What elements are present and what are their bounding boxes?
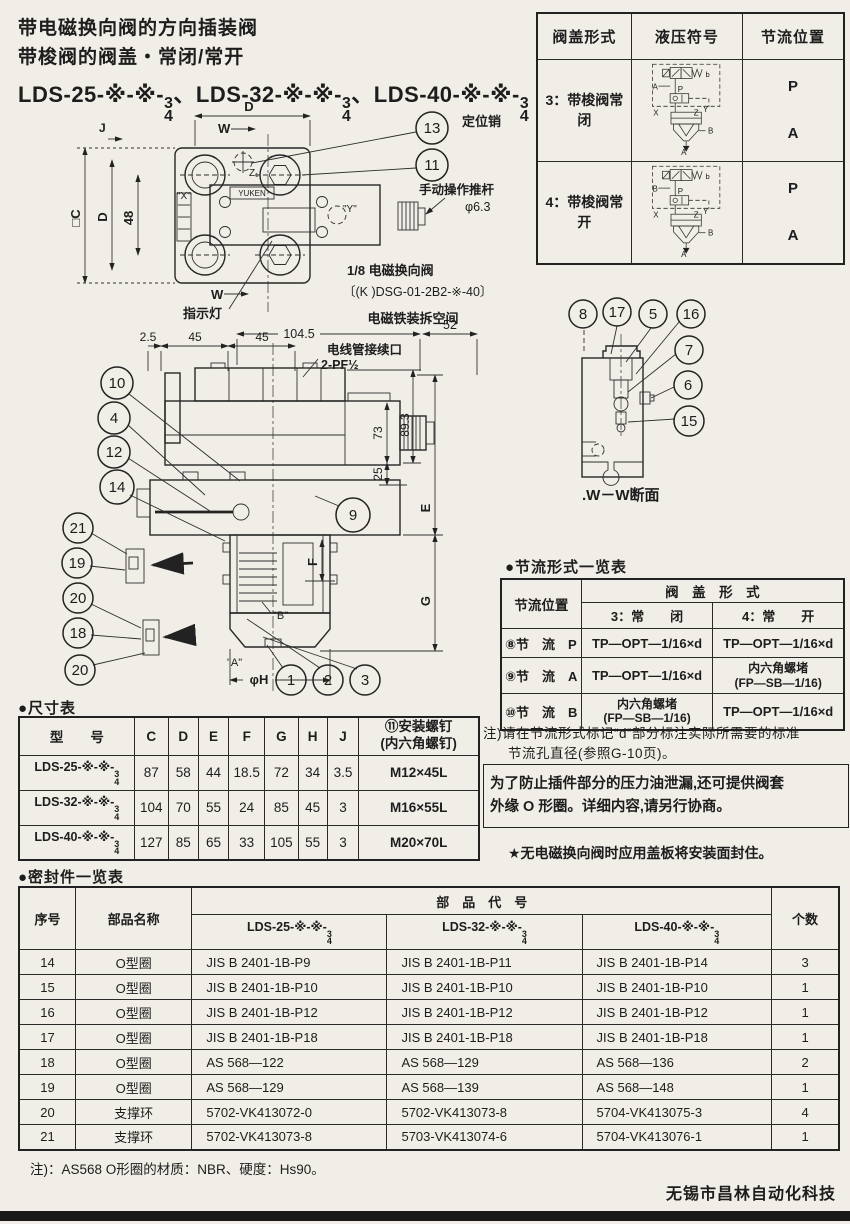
seal-row-15: 15 O型圈 JIS B 2401-1B-P10 JIS B 2401-1B-P… [19,975,839,1000]
val-j: 3 [327,790,359,825]
val-j: 3 [327,825,359,860]
dimension-row-lds25: LDS-25-※-※-34 87 58 44 18.5 72 34 3.5 M1… [19,755,479,790]
seal-name: O型圈 [75,975,191,1000]
port-b-label: "B" [273,610,288,622]
val-screw: M16×55L [359,790,479,825]
val-screw: M12×45L [359,755,479,790]
throttle-header-row-1: 节流位置 阀 盖 形 式 [501,579,844,603]
balloon-4: 4 [98,402,130,434]
seal-code-3: AS 568—148 [582,1075,772,1100]
seal-code-1: 5702-VK413073-8 [192,1125,387,1150]
throttle-pos-a: A [788,227,799,244]
balloon-3: 3 [350,665,380,695]
seal-code-1: AS 568—129 [192,1075,387,1100]
manual-rod-label: 手动操作推杆 [419,182,495,197]
balloon-11: 11 [416,149,448,181]
conduit-port-label: 电线管接续口 [327,342,402,357]
symbol-port-a-bottom: A [681,148,687,157]
dim-j: J [99,121,106,135]
symbol-port-x: X [653,210,659,219]
balloon-12: 12 [98,436,130,468]
catalog-page: 带电磁换向阀的方向插装阀 带梭阀的阀盖・常闭/常开 LDS-25-※-※-34、… [0,0,850,1224]
locating-pin-label: 定位销 [461,114,501,129]
solenoid-valve-label: 1/8 电磁换向阀 [347,263,434,278]
throttle-table-title: ●节流形式一览表 [505,556,843,580]
seal-parts-table: 序号 部品名称 部 品 代 号 个数 LDS-25-※-※-34 LDS-32-… [18,886,840,1151]
header-cover-form: 阀盖形式 [537,13,631,59]
svg-text:11: 11 [424,157,440,174]
header-normally-open: 4：常 开 [713,603,844,629]
val-d: 70 [168,790,198,825]
throttle-pos-a: A [788,125,799,142]
seal-material-note: 注)：AS568 O形圈的材质：NBR、硬度：Hs90。 [30,1158,325,1178]
seal-name: 支撑环 [75,1125,191,1150]
dim-g: G [418,596,433,606]
throttle-note-line-1: 注)请在节流形式标记“d”部分标注实际所需要的标准 [483,722,845,742]
port-z1-label: Z₁ [249,168,259,179]
svg-text:14: 14 [109,479,126,496]
svg-text:3: 3 [361,672,369,689]
seal-name: O型圈 [75,1000,191,1025]
hydraulic-symbol-closed-cell: b A P X Z Y B A [631,59,742,161]
seal-qty: 1 [772,1125,839,1150]
svg-text:21: 21 [70,520,87,537]
header-h: H [298,717,327,755]
cover-form-table: 阀盖形式 液压符号 节流位置 3：带梭阀常闭 b A P [536,12,845,265]
closed-value: TP—OPT—1/16×d [581,629,713,658]
symbol-port-z: Z [694,210,699,219]
balloon-18: 18 [63,618,93,648]
seal-name: O型圈 [75,950,191,975]
cover-form-row-closed: 3：带梭阀常闭 b A P X Z [537,59,844,161]
svg-text:10: 10 [109,375,126,392]
header-f: F [229,717,265,755]
seal-code-1: JIS B 2401-1B-P9 [192,950,387,975]
header-model: 型 号 [19,717,134,755]
hydraulic-symbol-closed: b A P X Z Y B A [641,60,733,156]
header-d: D [168,717,198,755]
header-c: C [134,717,168,755]
svg-text:16: 16 [683,306,700,323]
seal-code-1: 5702-VK413072-0 [192,1100,387,1125]
balloon-20b: 20 [65,655,95,685]
seal-code-3: JIS B 2401-1B-P12 [582,1000,772,1025]
seal-code-2: JIS B 2401-1B-P18 [387,1025,582,1050]
val-e: 55 [198,790,229,825]
section-view-drawing: 电磁铁装拆空间 104.5 52 2.5 45 45 电线管接续口 2-PF½ [15,313,535,715]
seal-row-17: 17 O型圈 JIS B 2401-1B-P18 JIS B 2401-1B-P… [19,1025,839,1050]
seal-code-3: 5704-VK413075-3 [582,1100,772,1125]
symbol-port-left: B [652,184,657,193]
seal-code-3: JIS B 2401-1B-P18 [582,1025,772,1050]
solenoid-valve-model: 〔(K )DSG-01-2B2-※-40〕 [343,285,492,299]
throttle-pos-cell: ⑧节 流 P [501,629,581,658]
header-e: E [198,717,229,755]
seal-row-20: 20 支撑环 5702-VK413072-0 5702-VK413073-8 5… [19,1100,839,1125]
dim-89-3: 89.3 [398,413,412,437]
svg-text:13: 13 [424,120,441,137]
seal-code-3: AS 568—136 [582,1050,772,1075]
svg-text:17: 17 [609,304,626,321]
throttle-form-table: 节流位置 阀 盖 形 式 3：常 闭 4：常 开 ⑧节 流 P TP—OPT—1… [500,578,845,731]
cover-form-row-open: 4：带梭阀常开 b B P X Z [537,161,844,264]
val-j: 3.5 [327,755,359,790]
star-note: ★无电磁换向阀时应用盖板将安装面封住。 [508,843,773,863]
svg-text:20: 20 [70,590,87,607]
seal-qty: 4 [772,1100,839,1125]
seal-no: 15 [19,975,75,1000]
seal-row-14: 14 O型圈 JIS B 2401-1B-P9 JIS B 2401-1B-P1… [19,950,839,975]
throttle-row-a: ⑨节 流 A TP—OPT—1/16×d 内六角螺堵(FP—SB—1/16) [501,658,844,694]
cover-form-3-label: 3：带梭阀常闭 [537,59,631,161]
symbol-port-p: P [678,85,683,94]
header-qty: 个数 [772,887,839,950]
balloon-13: 13 [416,112,448,144]
balloon-6: 6 [674,371,702,399]
model-cell: LDS-40-※-※-34 [19,825,134,860]
model-cell: LDS-25-※-※-34 [19,755,134,790]
throttle-pos-cell: ⑨节 流 A [501,658,581,694]
symbol-port-bb: B [708,126,713,135]
svg-text:4: 4 [110,410,118,427]
seal-code-1: JIS B 2401-1B-P12 [192,1000,387,1025]
footer-company: 无锡市昌林自动化科技 [666,1180,836,1204]
svg-text:9: 9 [349,507,357,524]
throttle-pos-p: P [788,78,798,95]
balloon-20a: 20 [63,583,93,613]
balloon-14: 14 [100,470,134,504]
dim-45-a: 45 [188,330,202,344]
throttle-pos-p: P [788,180,798,197]
seal-name: 支撑环 [75,1100,191,1125]
seal-table-title: ●密封件一览表 [18,866,124,887]
balloon-8: 8 [569,300,597,328]
seal-qty: 3 [772,950,839,975]
val-c: 87 [134,755,168,790]
header-throttle-position: 节流位置 [501,579,581,629]
brand-label: YUKEN [238,189,266,198]
seal-header-row-1: 序号 部品名称 部 品 代 号 个数 [19,887,839,915]
seal-code-3: JIS B 2401-1B-P14 [582,950,772,975]
title-line-1: 带电磁换向阀的方向插装阀 [18,14,529,43]
seal-no: 17 [19,1025,75,1050]
seal-code-2: JIS B 2401-1B-P11 [387,950,582,975]
val-d: 85 [168,825,198,860]
seal-name: O型圈 [75,1075,191,1100]
balloon-17: 17 [603,298,631,326]
cover-form-4-label: 4：带梭阀常开 [537,161,631,264]
cover-form-header-row: 阀盖形式 液压符号 节流位置 [537,13,844,59]
svg-text:1: 1 [287,672,295,689]
val-e: 44 [198,755,229,790]
dim-25: 25 [371,467,385,481]
balloon-16: 16 [677,300,705,328]
dim-2-5: 2.5 [140,330,157,344]
symbol-port-b: b [705,171,709,180]
throttle-row-p: ⑧节 流 P TP—OPT—1/16×d TP—OPT—1/16×d [501,629,844,658]
seal-name: O型圈 [75,1025,191,1050]
seal-code-1: JIS B 2401-1B-P18 [192,1025,387,1050]
seal-qty: 1 [772,975,839,1000]
val-f: 18.5 [229,755,265,790]
val-screw: M20×70L [359,825,479,860]
symbol-port-y: Y [703,105,709,114]
val-e: 65 [198,825,229,860]
seal-row-21: 21 支撑环 5702-VK413073-8 5703-VK413074-6 5… [19,1125,839,1150]
dim-48: 48 [121,211,136,225]
seal-name: O型圈 [75,1050,191,1075]
closed-value: TP—OPT—1/16×d [581,658,713,694]
header-no: 序号 [19,887,75,950]
header-g: G [265,717,298,755]
header-hydraulic-symbol: 液压符号 [631,13,742,59]
symbol-port-p: P [678,187,683,196]
header-mounting-screw: ⑪安装螺钉(内六角螺钉) [359,717,479,755]
balloon-15: 15 [674,406,704,436]
dim-phi-h: φH [250,672,269,687]
dimension-row-lds40: LDS-40-※-※-34 127 85 65 33 105 55 3 M20×… [19,825,479,860]
svg-text:8: 8 [579,306,587,323]
val-d: 58 [168,755,198,790]
val-g: 85 [265,790,298,825]
seal-code-2: AS 568—139 [387,1075,582,1100]
manual-rod-diameter: φ6.3 [465,200,491,214]
header-throttle-position: 节流位置 [743,13,844,59]
val-c: 104 [134,790,168,825]
header-normally-closed: 3：常 闭 [581,603,713,629]
symbol-port-z: Z [694,108,699,117]
top-view-drawing: YUKEN D W W J □C D 48 "X" "Y" Z₁ 13 [25,98,535,330]
seal-code-1: JIS B 2401-1B-P10 [192,975,387,1000]
header-model-lds25: LDS-25-※-※-34 [192,915,387,950]
symbol-port-left: A [652,82,658,91]
model-cell: LDS-32-※-※-34 [19,790,134,825]
port-x-label: "X" [177,191,191,202]
dimension-header-row: 型 号 C D E F G H J ⑪安装螺钉(内六角螺钉) [19,717,479,755]
seal-qty: 1 [772,1000,839,1025]
dim-d-left: D [95,212,110,221]
seal-row-16: 16 O型圈 JIS B 2401-1B-P12 JIS B 2401-1B-P… [19,1000,839,1025]
open-value: 内六角螺堵(FP—SB—1/16) [713,658,844,694]
header-model-lds32: LDS-32-※-※-34 [387,915,582,950]
dimension-table: 型 号 C D E F G H J ⑪安装螺钉(内六角螺钉) LDS-25-※-… [18,716,480,861]
port-a-label: "A" [227,657,242,669]
seal-qty: 2 [772,1050,839,1075]
seal-code-2: 5703-VK413074-6 [387,1125,582,1150]
dim-52: 52 [443,318,457,332]
svg-text:7: 7 [685,342,693,359]
dimension-row-lds32: LDS-32-※-※-34 104 70 55 24 85 45 3 M16×5… [19,790,479,825]
val-g: 105 [265,825,298,860]
seal-no: 20 [19,1100,75,1125]
svg-text:15: 15 [681,413,698,430]
ww-section-drawing: 8 17 5 16 7 6 15 .W－W断面 [548,272,848,542]
seal-qty: 1 [772,1075,839,1100]
svg-text:2: 2 [324,672,332,689]
val-h: 45 [298,790,327,825]
dim-45-b: 45 [255,330,269,344]
dim-f: F [305,558,320,566]
header-part-code: 部 品 代 号 [192,887,772,915]
dim-73: 73 [371,426,385,440]
section-mark-w-bottom: W [211,287,224,302]
seal-no: 18 [19,1050,75,1075]
dim-e: E [418,503,433,512]
svg-text:6: 6 [684,377,692,394]
header-cover-form: 阀 盖 形 式 [581,579,844,603]
balloon-21: 21 [63,513,93,543]
svg-text:5: 5 [649,306,657,323]
seal-code-2: JIS B 2401-1B-P10 [387,975,582,1000]
dim-d-top: D [244,99,253,114]
oring-offer-box: 为了防止插件部分的压力油泄漏,还可提供阀套 外缘 O 形圈。详细内容,请另行协商… [483,764,849,828]
symbol-port-y: Y [703,207,709,216]
dim-c: □C [68,209,83,227]
svg-text:12: 12 [106,444,123,461]
header-part-name: 部品名称 [75,887,191,950]
seal-row-19: 19 O型圈 AS 568—129 AS 568—139 AS 568—148 … [19,1075,839,1100]
oring-box-line-1: 为了防止插件部分的压力油泄漏,还可提供阀套 [490,773,842,796]
seal-no: 21 [19,1125,75,1150]
seal-no: 14 [19,950,75,975]
val-g: 72 [265,755,298,790]
seal-code-2: AS 568—129 [387,1050,582,1075]
balloon-10: 10 [101,367,133,399]
symbol-port-a-bottom: A [681,250,687,259]
oring-box-line-2: 外缘 O 形圈。详细内容,请另行协商。 [490,796,842,819]
seal-code-3: 5704-VK413076-1 [582,1125,772,1150]
open-value: TP—OPT—1/16×d [713,629,844,658]
balloon-9: 9 [336,498,370,532]
val-h: 34 [298,755,327,790]
seal-code-2: JIS B 2401-1B-P12 [387,1000,582,1025]
header-model-lds40: LDS-40-※-※-34 [582,915,772,950]
hydraulic-symbol-open: b B P X Z Y B A [641,162,733,258]
val-f: 24 [229,790,265,825]
section-mark-w-top: W [218,121,231,136]
seal-no: 19 [19,1075,75,1100]
dim-104-5: 104.5 [283,327,314,341]
seal-code-1: AS 568—122 [192,1050,387,1075]
header-j: J [327,717,359,755]
svg-text:18: 18 [70,625,87,642]
val-f: 33 [229,825,265,860]
port-y-label: "Y" [343,204,357,215]
symbol-port-bb: B [708,228,713,237]
throttle-note-line-2: 节流孔直径(参照G-10页)。 [508,742,845,762]
ww-section-caption: .W－W断面 [582,486,659,504]
svg-text:20: 20 [72,662,89,679]
symbol-port-b: b [705,69,709,78]
balloon-7: 7 [675,336,703,364]
hydraulic-symbol-open-cell: b B P X Z Y B A [631,161,742,264]
balloon-5: 5 [639,300,667,328]
dimension-table-title: ●尺寸表 [18,697,76,718]
throttle-positions-closed: P A [743,59,844,161]
scan-bottom-bar [0,1211,850,1221]
seal-qty: 1 [772,1025,839,1050]
symbol-port-x: X [653,108,659,117]
seal-row-18: 18 O型圈 AS 568—122 AS 568—129 AS 568—136 … [19,1050,839,1075]
svg-text:19: 19 [69,555,86,572]
val-c: 127 [134,825,168,860]
seal-code-3: JIS B 2401-1B-P10 [582,975,772,1000]
throttle-positions-open: P A [743,161,844,264]
seal-no: 16 [19,1000,75,1025]
val-h: 55 [298,825,327,860]
title-line-2: 带梭阀的阀盖・常闭/常开 [18,43,529,72]
seal-code-2: 5702-VK413073-8 [387,1100,582,1125]
balloon-19: 19 [62,548,92,578]
